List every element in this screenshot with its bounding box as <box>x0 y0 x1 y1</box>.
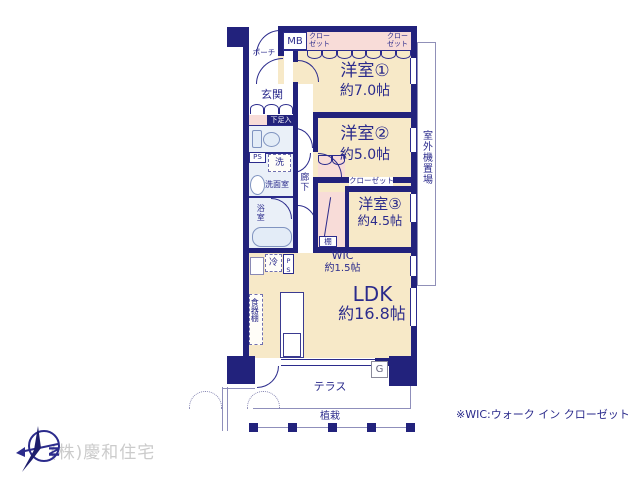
ldk-name: LDK <box>330 283 415 306</box>
wall <box>313 112 417 118</box>
window <box>410 256 417 276</box>
fence-post <box>406 423 415 432</box>
water-heater-box: G <box>371 361 388 378</box>
washer-label: 洗 <box>269 155 290 171</box>
water-heater-label: G <box>372 362 387 377</box>
counter-box <box>250 257 264 275</box>
closet-label-left: クローゼット <box>308 33 331 48</box>
room1-size: 約7.0帖 <box>310 83 420 99</box>
bathtub <box>252 227 292 247</box>
porch-label: ポーチ <box>249 49 279 58</box>
closet-folding-doors <box>307 50 411 59</box>
fence-post <box>367 423 376 432</box>
planting-label: 植栽 <box>305 411 355 423</box>
washer-space: 洗 <box>268 154 291 172</box>
ldk-size: 約16.8帖 <box>322 305 422 323</box>
floor-plan: MB PS 洗 冷 PS 食器棚 棚 G 下足入 室外機置場 洋室① 約7.0帖… <box>0 0 640 480</box>
closet-bottom-line <box>283 50 411 51</box>
room2-size: 約5.0帖 <box>315 147 415 163</box>
toilet-bowl <box>263 132 280 147</box>
compass: N <box>14 422 70 478</box>
entry-hall <box>284 50 293 84</box>
gate-post-line <box>222 387 223 431</box>
wall <box>313 177 318 253</box>
shoe-cabinet-doors <box>250 104 293 114</box>
ps-label: PS <box>250 153 265 162</box>
wic-note: ※WIC:ウォーク イン クローゼット <box>456 409 636 422</box>
mb-label: MB <box>284 33 306 50</box>
fridge-space: 冷 <box>265 254 282 272</box>
wall <box>293 82 298 86</box>
toilet-tank <box>252 130 262 148</box>
room3-name: 洋室③ <box>347 196 413 213</box>
wall <box>389 356 417 386</box>
ps-label-2: PS <box>284 255 291 275</box>
closet2-label: クローゼット <box>349 177 393 186</box>
wall <box>243 248 298 253</box>
company-watermark: (株)慶和住宅 <box>50 444 210 464</box>
meter-box: MB <box>283 32 307 50</box>
fence-post <box>288 423 297 432</box>
room3-size: 約4.5帖 <box>347 214 413 228</box>
wall <box>293 84 298 250</box>
dish-shelf-space: 食器棚 <box>249 294 263 345</box>
genkan-label: 玄関 <box>252 89 292 102</box>
compass-letter: N <box>45 446 60 457</box>
gate-post-line <box>227 387 228 431</box>
fence-post <box>249 423 258 432</box>
shoe-box: 下足入 <box>267 115 295 125</box>
corridor-label: 廊下 <box>298 172 308 192</box>
room1-name: 洋室① <box>310 62 420 82</box>
washroom-label: 洗面室 <box>261 180 293 189</box>
dish-shelf-label: 食器棚 <box>250 295 259 322</box>
shoe-cabinet <box>249 115 267 125</box>
gate-swing-arc <box>189 391 222 409</box>
wall <box>293 50 298 62</box>
shelf-label: 棚 <box>320 237 336 247</box>
closet-leader-dash <box>340 182 348 183</box>
shoe-box-label: 下足入 <box>267 115 295 125</box>
wall <box>227 356 255 384</box>
compass-icon: N <box>14 422 70 478</box>
kitchen-stove <box>283 333 301 357</box>
terrace-window <box>281 359 375 366</box>
wall <box>227 27 249 47</box>
pipe-space-box-2: PS <box>283 254 294 274</box>
terrace-label: テラス <box>305 381 355 394</box>
wic-name: WIC <box>315 250 370 263</box>
toilet-top-line <box>249 125 293 126</box>
pipe-space-box: PS <box>249 152 266 163</box>
washroom-bottom-line <box>249 196 293 198</box>
room2-name: 洋室② <box>315 125 415 145</box>
shelf-box: 棚 <box>319 236 337 247</box>
gate-top-line <box>222 388 255 389</box>
wall <box>345 186 411 192</box>
gate-swing-arc <box>247 391 280 409</box>
closet-label-right: クローゼット <box>386 33 409 48</box>
fridge-label: 冷 <box>266 255 281 271</box>
terrace-door-arc <box>257 366 279 388</box>
fence-post <box>328 423 337 432</box>
wic-size: 約1.5帖 <box>315 263 370 275</box>
bathroom-label: 浴室 <box>256 204 265 222</box>
outdoor-unit-label: 室外機置場 <box>420 130 432 185</box>
